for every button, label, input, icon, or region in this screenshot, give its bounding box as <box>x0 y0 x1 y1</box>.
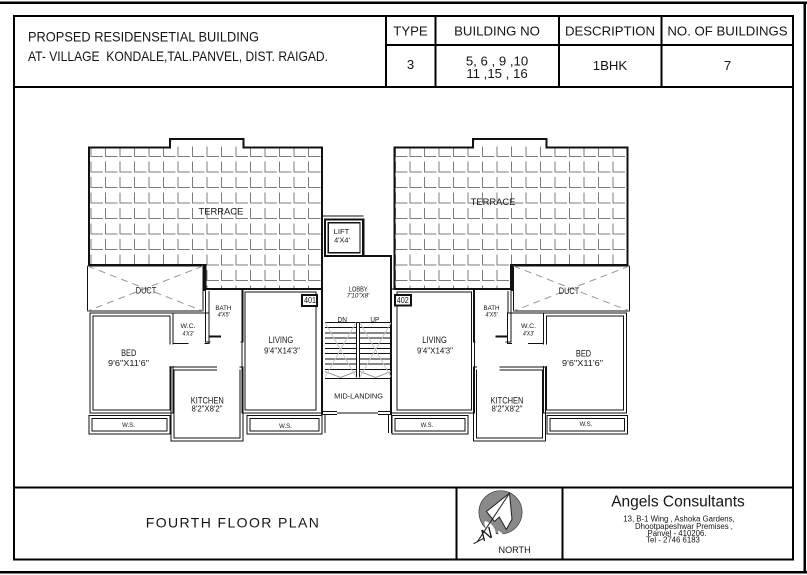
svg-text:401: 401 <box>304 295 316 305</box>
svg-text:W.C.: W.C. <box>521 323 536 330</box>
svg-text:4'X3': 4'X3' <box>523 332 535 338</box>
svg-text:MID-LANDING: MID-LANDING <box>334 391 383 400</box>
svg-text:9'6"X11'6": 9'6"X11'6" <box>108 358 149 368</box>
svg-text:7'10"X8': 7'10"X8' <box>347 293 370 300</box>
svg-text:Tel - 2746 6183: Tel - 2746 6183 <box>646 536 700 545</box>
svg-text:1BHK: 1BHK <box>593 58 628 73</box>
svg-text:7: 7 <box>724 58 731 73</box>
svg-text:DN: DN <box>338 317 347 324</box>
svg-text:DUCT: DUCT <box>559 286 580 296</box>
svg-text:TERRACE: TERRACE <box>199 206 244 217</box>
svg-text:UP: UP <box>370 317 379 324</box>
svg-text:4'X5': 4'X5' <box>218 311 231 318</box>
svg-text:TERRACE: TERRACE <box>471 196 516 207</box>
svg-text:Angels Consultants: Angels Consultants <box>611 494 745 511</box>
svg-text:4'X5': 4'X5' <box>486 311 499 318</box>
svg-text:BED: BED <box>576 349 592 359</box>
svg-text:LIVING: LIVING <box>269 335 294 345</box>
svg-text:9'6"X11'6": 9'6"X11'6" <box>562 358 603 368</box>
svg-text:LIVING: LIVING <box>422 335 447 345</box>
svg-text:TYPE: TYPE <box>393 24 428 39</box>
svg-text:DESCRIPTION: DESCRIPTION <box>565 24 655 39</box>
svg-text:NORTH: NORTH <box>499 545 531 555</box>
svg-text:DUCT: DUCT <box>136 286 157 296</box>
svg-text:W.S.: W.S. <box>580 422 593 428</box>
svg-text:BED: BED <box>121 348 137 358</box>
svg-text:9'4"X14'3": 9'4"X14'3" <box>417 346 453 356</box>
svg-text:8'2"X8'2": 8'2"X8'2" <box>492 403 523 413</box>
svg-text:9'4"X14'3": 9'4"X14'3" <box>264 346 300 356</box>
svg-text:PROPSED RESIDENSETIAL BUILDING: PROPSED RESIDENSETIAL BUILDING <box>28 30 259 45</box>
svg-text:4'X3': 4'X3' <box>183 332 195 338</box>
svg-text:FOURTH FLOOR PLAN: FOURTH FLOOR PLAN <box>146 515 320 531</box>
svg-text:BUILDING NO: BUILDING NO <box>454 24 540 39</box>
svg-text:402: 402 <box>397 295 409 305</box>
svg-text:11 ,15 , 16: 11 ,15 , 16 <box>466 66 527 81</box>
svg-text:4'X4': 4'X4' <box>334 235 350 244</box>
svg-text:W.C.: W.C. <box>181 323 196 330</box>
svg-text:AT- VILLAGE KONDALE,TAL.PANVE: AT- VILLAGE KONDALE,TAL.PANVEL, DIST. RA… <box>28 49 328 64</box>
svg-text:3: 3 <box>407 57 414 72</box>
svg-text:NO. OF BUILDINGS: NO. OF BUILDINGS <box>667 24 787 39</box>
svg-text:W.S.: W.S. <box>279 424 292 430</box>
svg-text:W.S.: W.S. <box>122 423 135 429</box>
svg-text:8'2"X8'2": 8'2"X8'2" <box>192 403 223 413</box>
svg-text:W.S.: W.S. <box>421 423 434 429</box>
